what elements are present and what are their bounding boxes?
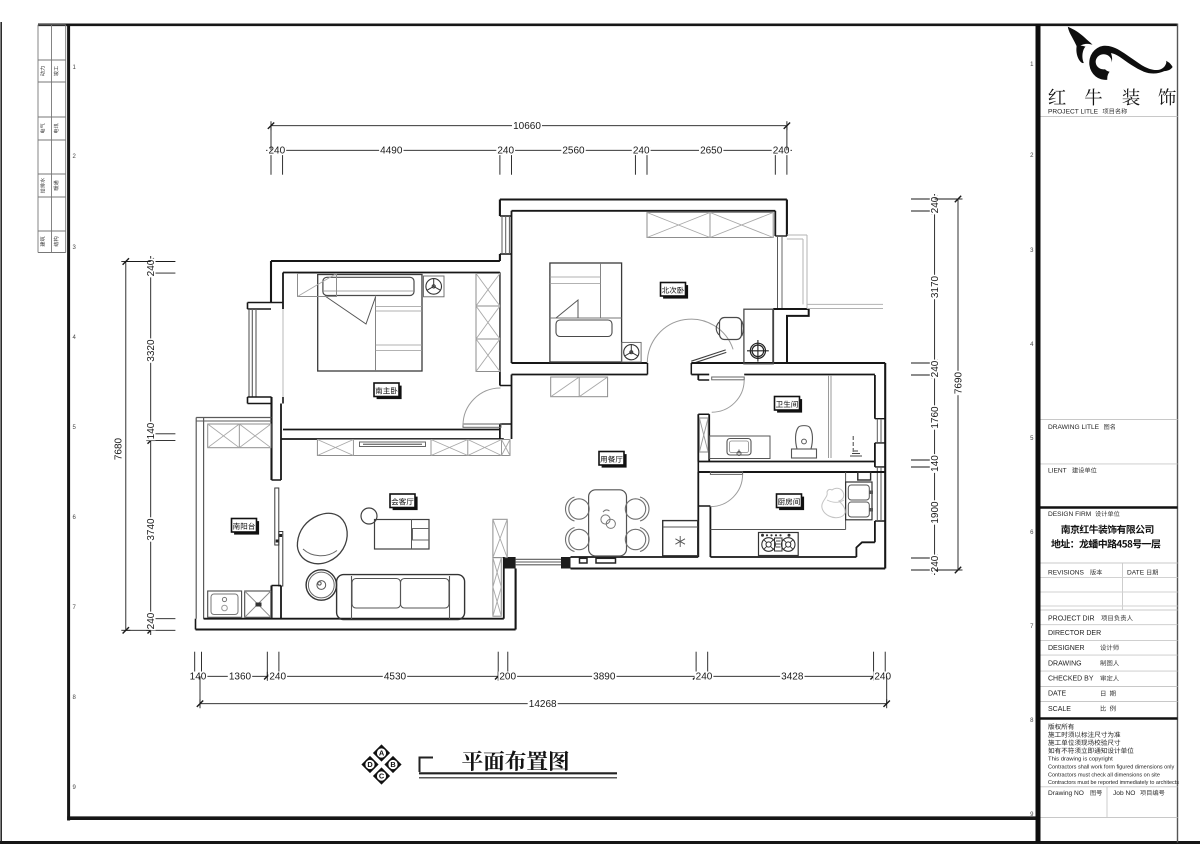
svg-text:10660: 10660: [513, 121, 541, 132]
svg-text:6: 6: [73, 515, 77, 521]
svg-text:1: 1: [73, 65, 77, 71]
svg-text:Drawing NO: Drawing NO: [1048, 790, 1084, 797]
svg-text:2: 2: [73, 154, 77, 160]
svg-text:140: 140: [146, 422, 157, 439]
svg-text:240: 240: [633, 146, 650, 157]
svg-text:2: 2: [1030, 153, 1034, 159]
svg-text:200: 200: [499, 672, 516, 683]
svg-text:Contractors must check all dim: Contractors must check all dimensions on…: [1048, 773, 1160, 779]
svg-text:REVISIONS: REVISIONS: [1048, 570, 1085, 577]
svg-text:8: 8: [1030, 718, 1034, 724]
svg-text:7: 7: [1030, 624, 1034, 630]
svg-text:240: 240: [696, 672, 713, 683]
svg-text:3890: 3890: [593, 672, 616, 683]
svg-text:DRAWING: DRAWING: [1048, 660, 1082, 667]
svg-text:240: 240: [497, 146, 514, 157]
svg-text:1760: 1760: [930, 406, 941, 429]
svg-text:140: 140: [930, 455, 941, 472]
svg-text:DIRECTOR DER: DIRECTOR DER: [1048, 630, 1101, 637]
svg-text:1360: 1360: [229, 672, 252, 683]
svg-text:2560: 2560: [562, 146, 585, 157]
svg-text:3: 3: [73, 245, 77, 251]
svg-text:240: 240: [146, 612, 157, 629]
svg-text:3740: 3740: [146, 518, 157, 541]
svg-text:Job NO: Job NO: [1113, 790, 1135, 797]
svg-text:7690: 7690: [953, 371, 964, 394]
svg-text:5: 5: [73, 425, 77, 431]
svg-text:240: 240: [930, 360, 941, 377]
svg-text:7: 7: [73, 605, 77, 611]
svg-text:PROJECT LITLE: PROJECT LITLE: [1048, 109, 1099, 116]
svg-text:3320: 3320: [146, 339, 157, 362]
svg-text:4: 4: [1030, 342, 1034, 348]
svg-text:3428: 3428: [781, 672, 804, 683]
svg-text:9: 9: [73, 785, 77, 791]
svg-text:DATE: DATE: [1127, 570, 1145, 577]
svg-text:3170: 3170: [930, 275, 941, 298]
svg-text:DATE: DATE: [1048, 691, 1066, 698]
svg-text:A: A: [379, 749, 385, 758]
svg-text:1900: 1900: [930, 501, 941, 524]
svg-text:4: 4: [73, 335, 77, 341]
svg-text:7680: 7680: [113, 437, 124, 460]
svg-text:6: 6: [1030, 530, 1034, 536]
svg-text:1: 1: [1030, 62, 1034, 68]
svg-text:2650: 2650: [700, 146, 723, 157]
svg-text:4530: 4530: [384, 672, 407, 683]
svg-text:B: B: [390, 760, 395, 769]
svg-text:CHECKED BY: CHECKED BY: [1048, 676, 1094, 683]
svg-text:DRAWING LITLE: DRAWING LITLE: [1048, 424, 1100, 431]
svg-text:4490: 4490: [380, 146, 403, 157]
svg-text:240: 240: [269, 672, 286, 683]
svg-text:SCALE: SCALE: [1048, 706, 1071, 713]
svg-text:C: C: [379, 772, 385, 781]
svg-text:240: 240: [874, 672, 891, 683]
svg-text:5: 5: [1030, 436, 1034, 442]
svg-text:140: 140: [190, 672, 207, 683]
svg-text:This drawing is copyright: This drawing is copyright: [1048, 757, 1113, 763]
svg-text:Contractors shall work form fi: Contractors shall work form figured dime…: [1048, 765, 1174, 771]
svg-text:3: 3: [1030, 248, 1034, 254]
svg-text:PROJECT DIR: PROJECT DIR: [1048, 615, 1095, 622]
svg-text:8: 8: [73, 695, 77, 701]
svg-text:DESIGNER: DESIGNER: [1048, 645, 1085, 652]
svg-text:LIENT: LIENT: [1048, 468, 1067, 475]
svg-text:D: D: [367, 760, 373, 769]
svg-text:DESIGN FIRM: DESIGN FIRM: [1048, 511, 1091, 518]
svg-text:14268: 14268: [529, 699, 557, 710]
svg-text:Contractors must be reported i: Contractors must be reported immediately…: [1048, 780, 1179, 786]
